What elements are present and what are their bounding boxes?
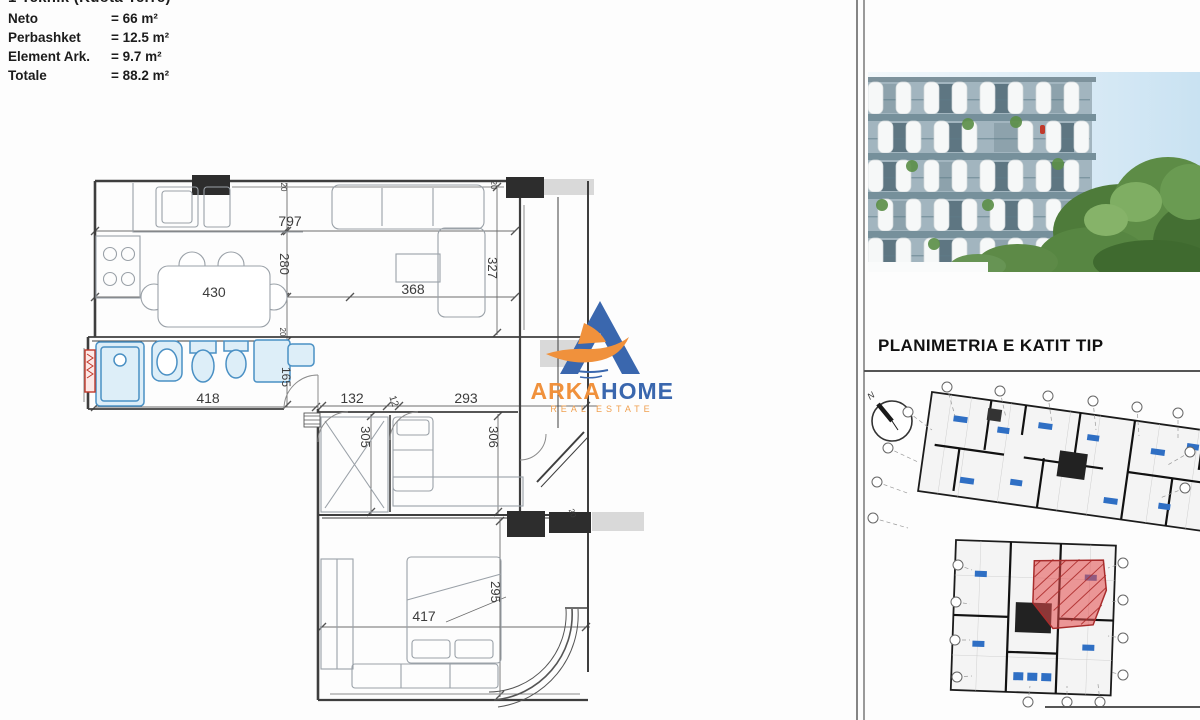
- grid-bubble: [883, 443, 893, 453]
- grid-bubble: [1118, 670, 1128, 680]
- dimension-label: 305: [358, 426, 373, 448]
- grid-bubble: [1023, 697, 1033, 707]
- dimension-label: 280: [277, 253, 292, 275]
- red-object-on-balcony: [1040, 125, 1045, 134]
- grid-bubble: [1118, 595, 1128, 605]
- dimension-label: 295: [488, 581, 503, 603]
- heading-underline: [864, 370, 1200, 372]
- building-photo: [868, 72, 1200, 272]
- radiator: [85, 350, 95, 392]
- bottom-rule: [1045, 706, 1200, 708]
- keyplan-main-bar: [918, 392, 1200, 531]
- dimension-lines: [95, 183, 598, 697]
- grid-bubble: [903, 407, 913, 417]
- dimension-label: 797: [278, 213, 302, 229]
- grid-bubble: [1118, 633, 1128, 643]
- dimension-label: 368: [401, 281, 425, 297]
- dimension-label: 306: [486, 426, 501, 448]
- compass-label: N: [865, 389, 876, 401]
- dimension-label: 327: [485, 257, 500, 279]
- grid-bubble: [1043, 391, 1053, 401]
- page: 1 Teknik (Kuota Terre) Neto = 66 m² Perb…: [0, 0, 1200, 720]
- dimension-label: 418: [196, 390, 220, 406]
- panel-divider: [856, 0, 858, 720]
- dimension-label: 293: [454, 390, 478, 406]
- grid-bubble: [951, 597, 961, 607]
- balcony-plant: [982, 199, 994, 211]
- bathtub: [96, 342, 144, 406]
- grid-bubble: [1118, 558, 1128, 568]
- dimension-label: 20: [489, 181, 498, 190]
- grid-bubble: [872, 477, 882, 487]
- shaft: [304, 413, 320, 427]
- single-bed: [393, 417, 433, 491]
- grid-bubble: [952, 672, 962, 682]
- stove-icon: [96, 236, 140, 298]
- grid-bubble: [1173, 408, 1183, 418]
- balcony-plant: [962, 118, 974, 130]
- dimension-label: 20: [278, 328, 287, 337]
- sofa: [332, 185, 484, 229]
- small-basin: [288, 344, 314, 366]
- grid-bubble: [950, 635, 960, 645]
- grid-bubble: [868, 513, 878, 523]
- dimension-label: 20: [279, 183, 288, 192]
- grid-bubble: [942, 382, 952, 392]
- section-title: PLANIMETRIA E KATIT TIP: [878, 336, 1103, 356]
- dimension-label: 132: [340, 390, 364, 406]
- balcony-plant: [876, 199, 888, 211]
- balcony-plant: [906, 160, 918, 172]
- grid-bubble: [1180, 483, 1190, 493]
- dimension-label: 165: [279, 367, 293, 387]
- dimension-label: 417: [412, 608, 436, 624]
- dimension-label: 430: [202, 284, 226, 300]
- coffee-table: [396, 254, 440, 282]
- dimension-ticks: [91, 183, 590, 699]
- balcony-plant: [1052, 158, 1064, 170]
- windows: [84, 187, 580, 694]
- floor-plan-drawing: 7972804303683274181651321229330530641729…: [0, 0, 860, 720]
- balcony-plant: [1010, 116, 1022, 128]
- grid-bubble: [1088, 396, 1098, 406]
- logo-text-home: HOME: [601, 378, 674, 404]
- logo-text-arka: ARKA: [531, 378, 601, 404]
- key-plan-drawing: N: [860, 378, 1200, 708]
- keyplan-wing: [951, 540, 1116, 695]
- logo-tagline: REAL ESTATE: [550, 404, 653, 414]
- furniture: [96, 183, 523, 688]
- grid-bubble: [1132, 402, 1142, 412]
- grid-bubble: [953, 560, 963, 570]
- balcony-plant: [928, 238, 940, 250]
- ground: [868, 262, 988, 272]
- grid-bubble: [995, 386, 1005, 396]
- grid-bubble: [1185, 447, 1195, 457]
